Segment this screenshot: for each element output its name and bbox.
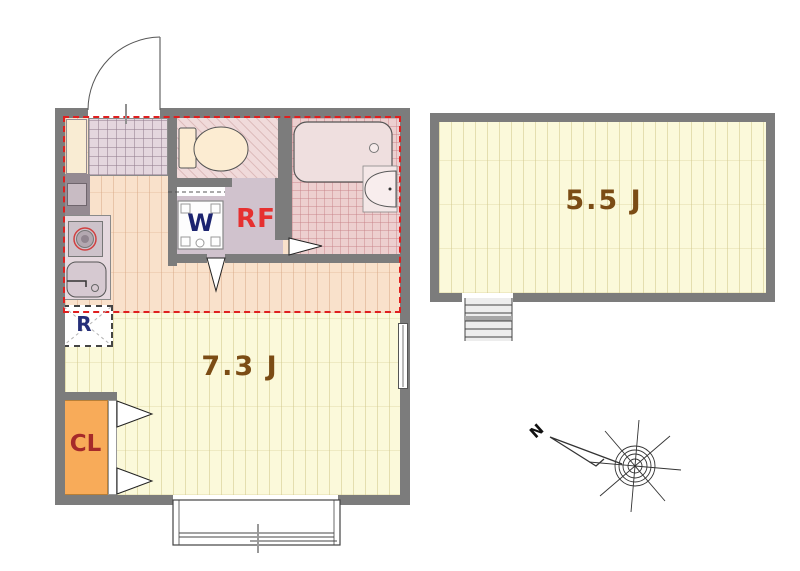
entry-door-arc <box>88 37 160 110</box>
right-wall-window <box>398 323 408 389</box>
stairs <box>465 298 512 341</box>
closet-door-strip <box>108 400 117 495</box>
right-unit-left-wall <box>430 113 439 302</box>
right-unit-top-wall <box>430 113 775 122</box>
compass-needle <box>550 437 622 466</box>
right-unit-bottom-wall-left <box>430 293 462 302</box>
compass-rose <box>589 420 681 512</box>
compass-north-label: N <box>525 419 550 444</box>
left-unit-bottom-wall-left <box>55 495 173 505</box>
fridge-label: R <box>61 314 107 334</box>
loft-room-area-label: 5.5 J <box>529 187 679 214</box>
washer-label: W <box>178 211 223 235</box>
floor-plan: 7.3 J 5.5 J CL R W RF N <box>0 0 800 571</box>
left-unit-right-wall <box>400 108 410 505</box>
loft-area-marker-label: RF <box>230 206 282 232</box>
closet-label: CL <box>63 433 108 456</box>
main-room-area-label: 7.3 J <box>165 353 315 380</box>
left-unit-bottom-wall-right <box>338 495 410 505</box>
balcony <box>173 500 340 553</box>
right-unit-bottom-wall-right <box>513 293 775 302</box>
right-unit-right-wall <box>766 113 775 302</box>
